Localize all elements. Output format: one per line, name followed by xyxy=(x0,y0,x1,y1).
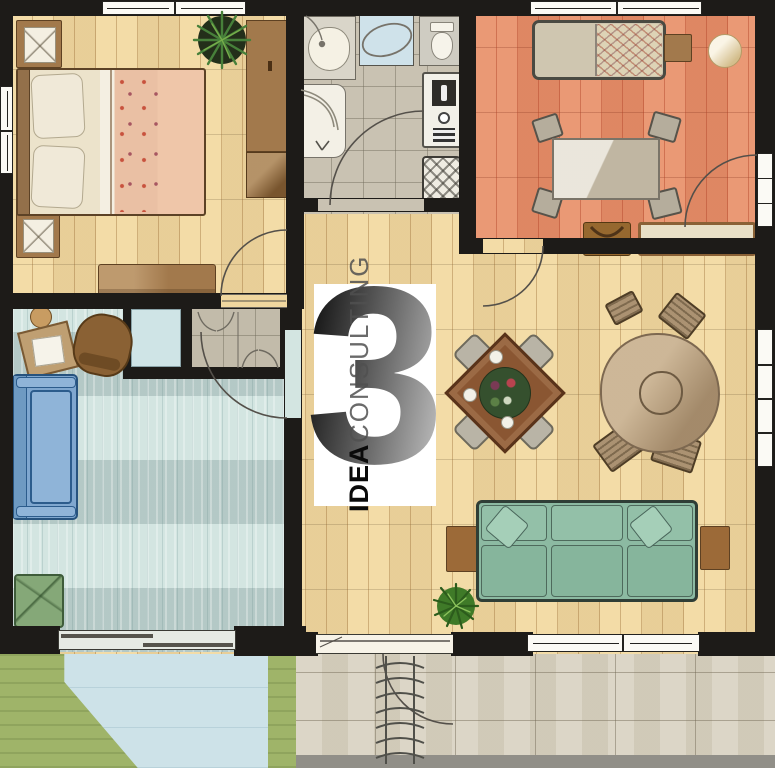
wall-corner-block xyxy=(234,626,306,656)
nightstand xyxy=(16,212,60,258)
single-bed-blanket xyxy=(595,24,662,76)
side-shelf xyxy=(664,34,692,62)
wall-right xyxy=(755,0,775,654)
round-table-center xyxy=(639,371,683,415)
wall-living-bottom-mid xyxy=(451,632,533,656)
watermark-brand-bold: IDEA xyxy=(344,443,375,512)
door-gap-study xyxy=(483,239,543,253)
bathtub xyxy=(298,84,346,158)
wall-den-bottom-left xyxy=(0,626,60,654)
side-table xyxy=(446,526,478,572)
storage-floor xyxy=(192,309,280,367)
single-bed xyxy=(532,20,666,80)
nightstand-top xyxy=(23,219,54,253)
window-bottom-living xyxy=(527,634,700,652)
desk-paper xyxy=(31,335,65,367)
toilet-tank xyxy=(430,22,454,32)
sofa-seat-cushion xyxy=(481,545,547,597)
sliding-panel xyxy=(61,634,153,638)
door-gap-bedroom xyxy=(221,294,287,308)
sofa-back-cushion xyxy=(551,505,623,541)
toilet xyxy=(419,16,463,66)
door-opening-terrace xyxy=(316,634,453,654)
nightstand xyxy=(16,20,62,68)
boiler-bottle-icon xyxy=(441,85,447,101)
green-armchair xyxy=(14,574,64,628)
door-right-study xyxy=(757,153,773,227)
boiler-dial xyxy=(438,112,450,124)
nightstand-top xyxy=(24,27,56,63)
watermark-brand: IDEACONSULTING xyxy=(344,288,375,512)
side-table xyxy=(700,526,730,570)
wall-living-bottom-right xyxy=(698,632,775,656)
sliding-panel xyxy=(143,643,233,647)
blue-sofa-seat xyxy=(30,390,72,504)
pillow xyxy=(30,145,85,210)
window-right-living xyxy=(757,329,773,467)
watermark-numeral: 3 xyxy=(300,246,450,506)
boiler-vents xyxy=(433,128,455,142)
sofa-seat-cushion xyxy=(551,545,623,597)
plate xyxy=(501,416,514,429)
wall-study-left xyxy=(459,0,476,242)
blanket-floral-strip xyxy=(114,72,158,212)
toilet-bowl xyxy=(431,32,453,60)
double-bed xyxy=(16,68,206,216)
pouf xyxy=(708,34,742,68)
door-gap-den xyxy=(285,330,301,418)
pillow xyxy=(30,73,85,140)
blue-sofa-arm xyxy=(16,377,76,388)
blue-sofa-back xyxy=(14,376,27,518)
green-sofa xyxy=(476,500,698,602)
plate xyxy=(463,388,477,402)
vanity-counter xyxy=(300,16,356,80)
window-top-study xyxy=(530,1,702,15)
door-gap-bathroom xyxy=(318,199,424,211)
round-table xyxy=(600,333,720,453)
watermark-box: 3 xyxy=(314,284,436,506)
blue-sofa xyxy=(12,374,78,520)
sofa-seat-cushion xyxy=(627,545,693,597)
centerpiece xyxy=(479,367,531,419)
stone-patio xyxy=(296,652,775,768)
study-table xyxy=(552,138,660,200)
wardrobe-handle xyxy=(268,61,272,71)
sliding-glass-door-terrace xyxy=(58,630,236,650)
headboard xyxy=(18,70,30,214)
closet-floor xyxy=(131,309,181,367)
sheet-fold-line xyxy=(110,70,112,214)
boiler-panel xyxy=(432,80,456,106)
blue-sofa-arm xyxy=(16,506,76,517)
plate xyxy=(489,350,503,364)
window-left-bedroom xyxy=(0,86,13,174)
boiler xyxy=(422,72,464,148)
office-chair-back xyxy=(78,351,122,371)
sink-basin xyxy=(308,27,350,71)
floor-plan: 3 IDEACONSULTING xyxy=(0,0,775,768)
curb-strip xyxy=(296,755,775,768)
shower-glass xyxy=(359,14,414,66)
window-top-bedroom xyxy=(102,1,246,15)
watermark-brand-light: CONSULTING xyxy=(344,255,375,444)
